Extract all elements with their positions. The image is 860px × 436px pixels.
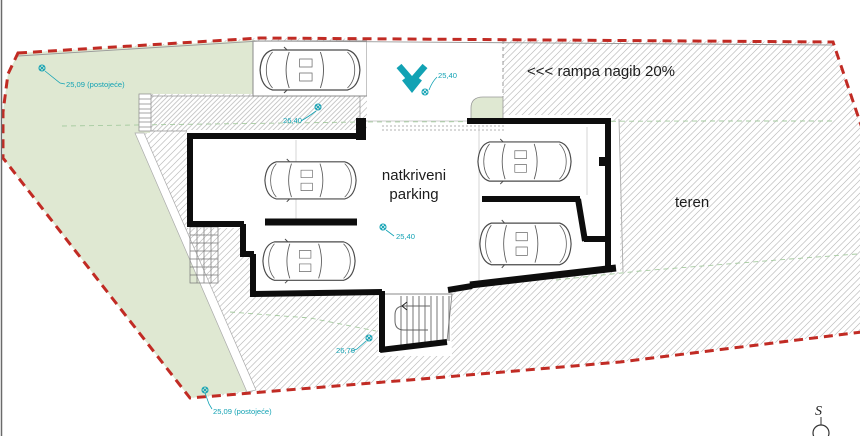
covered-parking-label-line1: natkriveni: [382, 167, 446, 184]
car-icon: [265, 159, 356, 202]
elevation-label: 26,70: [336, 346, 355, 355]
retaining-wall-detail-top: [139, 94, 151, 131]
car-icon: [478, 139, 571, 184]
covered-parking-label-line2: parking: [389, 186, 438, 203]
car-icon: [480, 220, 571, 268]
ramp-label: <<< rampa nagib 20%: [527, 63, 675, 80]
elevation-label: 25,40: [438, 71, 457, 80]
elevation-label: 25,40: [396, 232, 415, 241]
car-icon: [260, 47, 360, 93]
north-arrow-icon: S: [813, 404, 829, 436]
elevation-label: 26,40: [283, 116, 302, 125]
site-plan-drawing: 25,09 (postojeće) 25,09 (postojeće) 25,4…: [0, 0, 860, 436]
elevation-label: 25,09 (postojeće): [66, 80, 125, 89]
retaining-band: [150, 96, 360, 131]
east-wall-strip: [611, 122, 620, 272]
site-plan-canvas: 25,09 (postojeće) 25,09 (postojeće) 25,4…: [0, 0, 860, 436]
terrain-label: teren: [675, 194, 709, 211]
car-icon: [263, 239, 355, 283]
svg-text:S: S: [815, 404, 822, 419]
elevation-label: 25,09 (postojeće): [213, 407, 272, 416]
ramp-corner-green: [471, 97, 503, 120]
